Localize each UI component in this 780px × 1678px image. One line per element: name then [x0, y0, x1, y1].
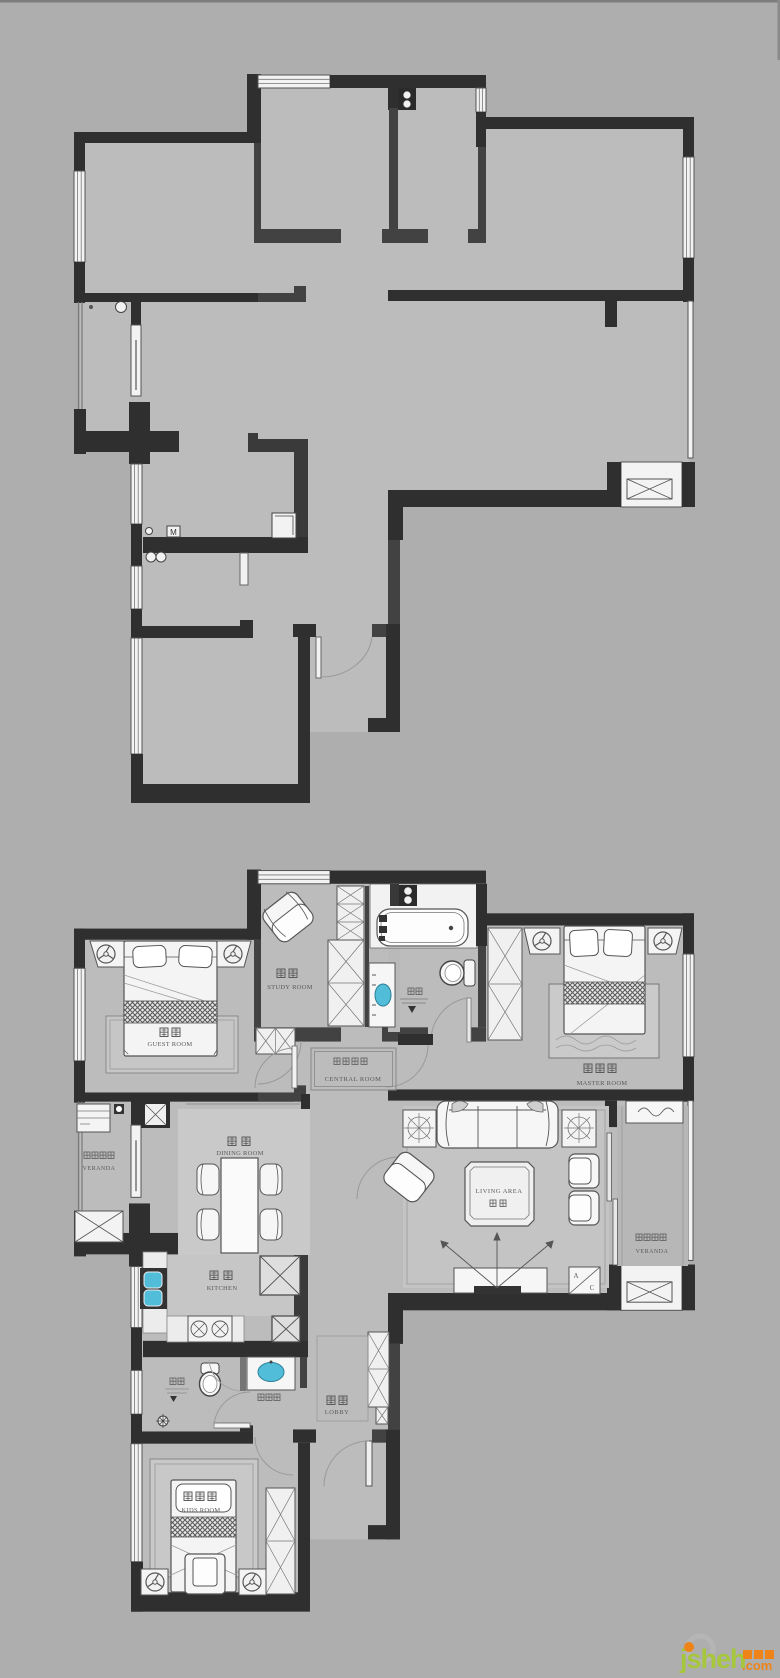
svg-text:CENTRAL ROOM: CENTRAL ROOM	[325, 1076, 382, 1083]
svg-text:A: A	[573, 1272, 578, 1280]
svg-text:STUDY ROOM: STUDY ROOM	[267, 984, 313, 991]
svg-text:KITCHEN: KITCHEN	[207, 1285, 238, 1292]
svg-text:LOBBY: LOBBY	[325, 1409, 350, 1416]
svg-text:DINING ROOM: DINING ROOM	[216, 1150, 264, 1157]
svg-text:VERANDA: VERANDA	[636, 1249, 669, 1255]
svg-text:C: C	[590, 1284, 595, 1292]
svg-text:KIDS ROOM: KIDS ROOM	[182, 1507, 221, 1514]
svg-text:GUEST ROOM: GUEST ROOM	[148, 1041, 193, 1048]
svg-text:M: M	[170, 528, 177, 537]
svg-text:.com: .com	[742, 1658, 772, 1673]
svg-text:LIVING AREA: LIVING AREA	[476, 1188, 523, 1195]
svg-text:VERANDA: VERANDA	[83, 1166, 116, 1172]
svg-text:MASTER ROOM: MASTER ROOM	[577, 1080, 628, 1087]
